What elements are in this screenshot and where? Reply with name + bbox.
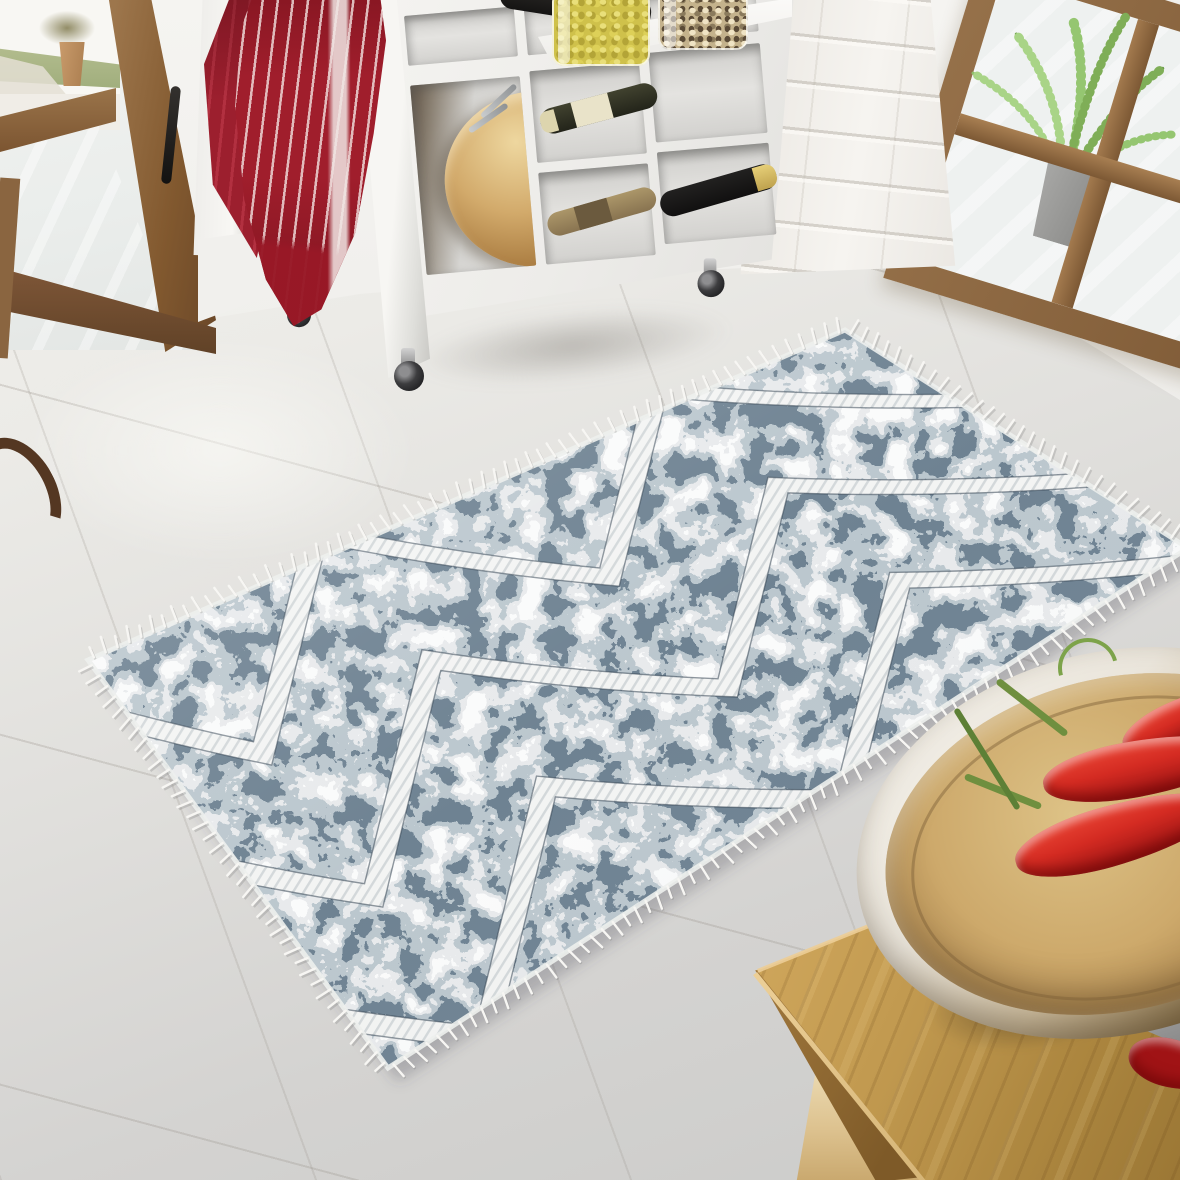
caster-wheel — [392, 348, 426, 396]
caster-wheel — [696, 258, 727, 301]
bottle-capsule — [752, 162, 780, 191]
cubby-empty — [648, 43, 767, 142]
kitchen-scene — [0, 0, 1180, 1180]
glass-highlight — [558, 0, 570, 64]
cubby-empty — [404, 6, 518, 65]
cubby-with-salad-bowl — [410, 76, 536, 275]
jar-of-pasta — [552, 0, 650, 66]
jar-of-muesli — [658, 0, 748, 50]
glass-highlight — [664, 0, 676, 48]
